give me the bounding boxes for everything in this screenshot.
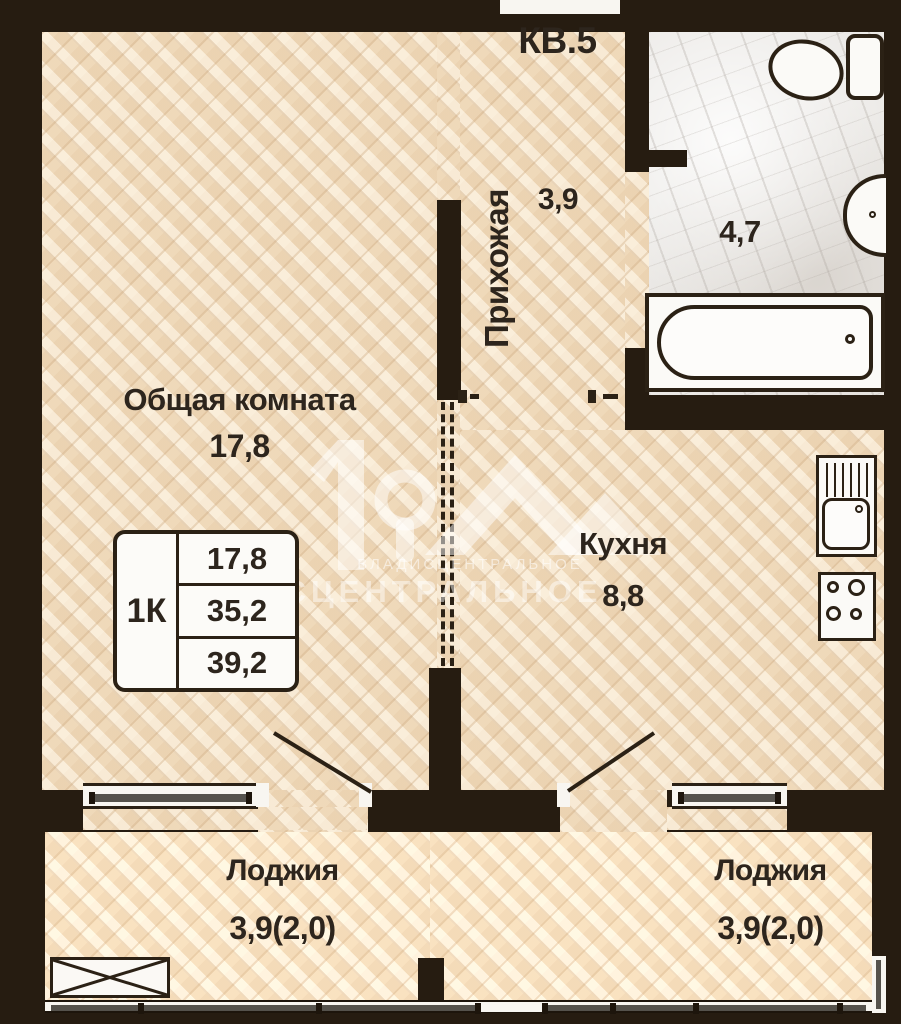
stove-burner xyxy=(826,606,841,621)
floor-plan: ВЛАДИСЦЕНТРАЛЬНОЕ ВЛАДИСЦЕНТРАЛЬНОЕ КВ.5… xyxy=(0,0,901,1024)
bathtub-drain xyxy=(845,334,855,344)
loggia-right-label: Лоджия xyxy=(683,855,858,887)
kitchen-drainboard xyxy=(826,463,868,497)
hallway-area: 3,9 xyxy=(522,184,594,216)
kitchen-sink-icon xyxy=(816,455,877,557)
kitchen-faucet xyxy=(855,505,863,513)
stove-burner xyxy=(850,608,862,620)
stove-burner xyxy=(827,581,839,593)
sink-drain xyxy=(869,211,876,218)
kitchen-area: 8,8 xyxy=(553,580,693,613)
door-jamb-mark xyxy=(603,394,618,399)
hallway-label: Прихожая xyxy=(480,130,524,408)
area-cell: 35,2 xyxy=(179,583,295,635)
balcony-door-left-swing xyxy=(274,733,371,792)
door-jamb-mark xyxy=(470,394,479,399)
apartment-number-label: КВ.5 xyxy=(495,22,620,61)
wardrobe-icon xyxy=(50,957,170,998)
door-jamb-mark xyxy=(588,390,596,403)
total-area-cell: 39,2 xyxy=(179,636,295,688)
bathtub-icon xyxy=(645,293,885,392)
bathroom-area: 4,7 xyxy=(700,216,780,249)
living-room-label: Общая комната xyxy=(47,384,432,417)
loggia-left-label: Лоджия xyxy=(195,855,370,887)
loggia-right-area: 3,9(2,0) xyxy=(673,912,868,946)
loggia-left-area: 3,9(2,0) xyxy=(185,912,380,946)
living-area-cell: 17,8 xyxy=(179,534,295,583)
toilet-tank-icon xyxy=(846,34,884,100)
door-jamb-mark xyxy=(458,390,467,403)
unit-type-cell: 1К xyxy=(117,534,179,688)
living-room-area: 17,8 xyxy=(47,430,432,464)
kitchen-sink-basin xyxy=(822,498,870,550)
logo-keyhole xyxy=(381,476,429,524)
stove-burner xyxy=(848,579,865,596)
apartment-info-table: 1К 17,8 35,2 39,2 xyxy=(113,530,299,692)
kitchen-label: Кухня xyxy=(553,528,693,561)
bathtub-basin xyxy=(657,305,873,380)
stove-icon xyxy=(818,572,876,641)
balcony-door-right-swing xyxy=(568,733,654,791)
wardrobe-cross xyxy=(53,960,167,995)
